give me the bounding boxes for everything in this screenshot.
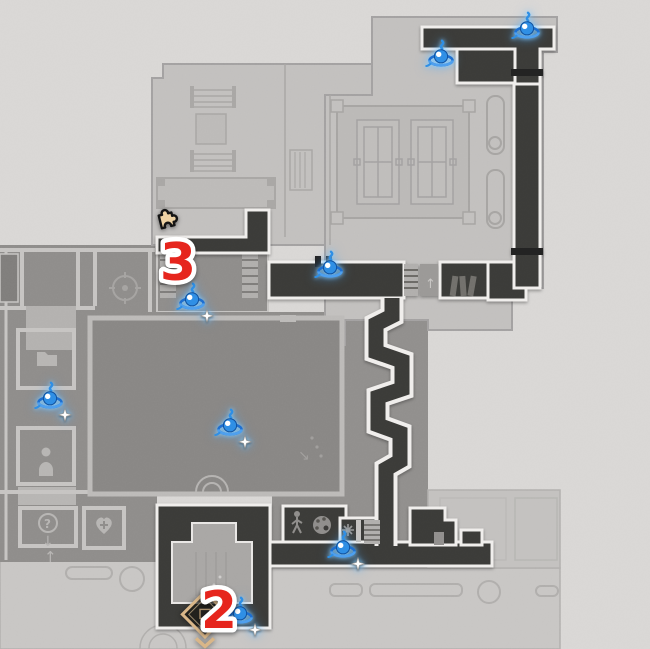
svg-text:3: 3 [160,233,196,291]
enemy-marker[interactable] [328,530,359,569]
enemy-icon [426,39,457,74]
sparkle-icon [352,557,365,570]
enemy-count-label: 3 [143,231,213,295]
enemy-marker[interactable] [426,39,457,78]
enemy-marker[interactable] [512,11,543,50]
count-icon: 3 [143,231,213,291]
sparkle-icon [59,408,72,421]
enemy-icon [512,11,543,46]
count-icon: 2 [184,579,254,639]
svg-text:2: 2 [201,581,237,639]
sparkle-icon [201,309,214,322]
enemy-icon [315,250,346,285]
game-map: ↘ [0,0,650,649]
sparkle-icon [239,435,252,448]
enemy-marker[interactable] [35,381,66,420]
enemy-count-label: 2 [184,579,254,643]
enemy-marker[interactable] [315,250,346,289]
enemy-marker[interactable] [215,408,246,447]
markers-layer: 32 [0,0,650,649]
